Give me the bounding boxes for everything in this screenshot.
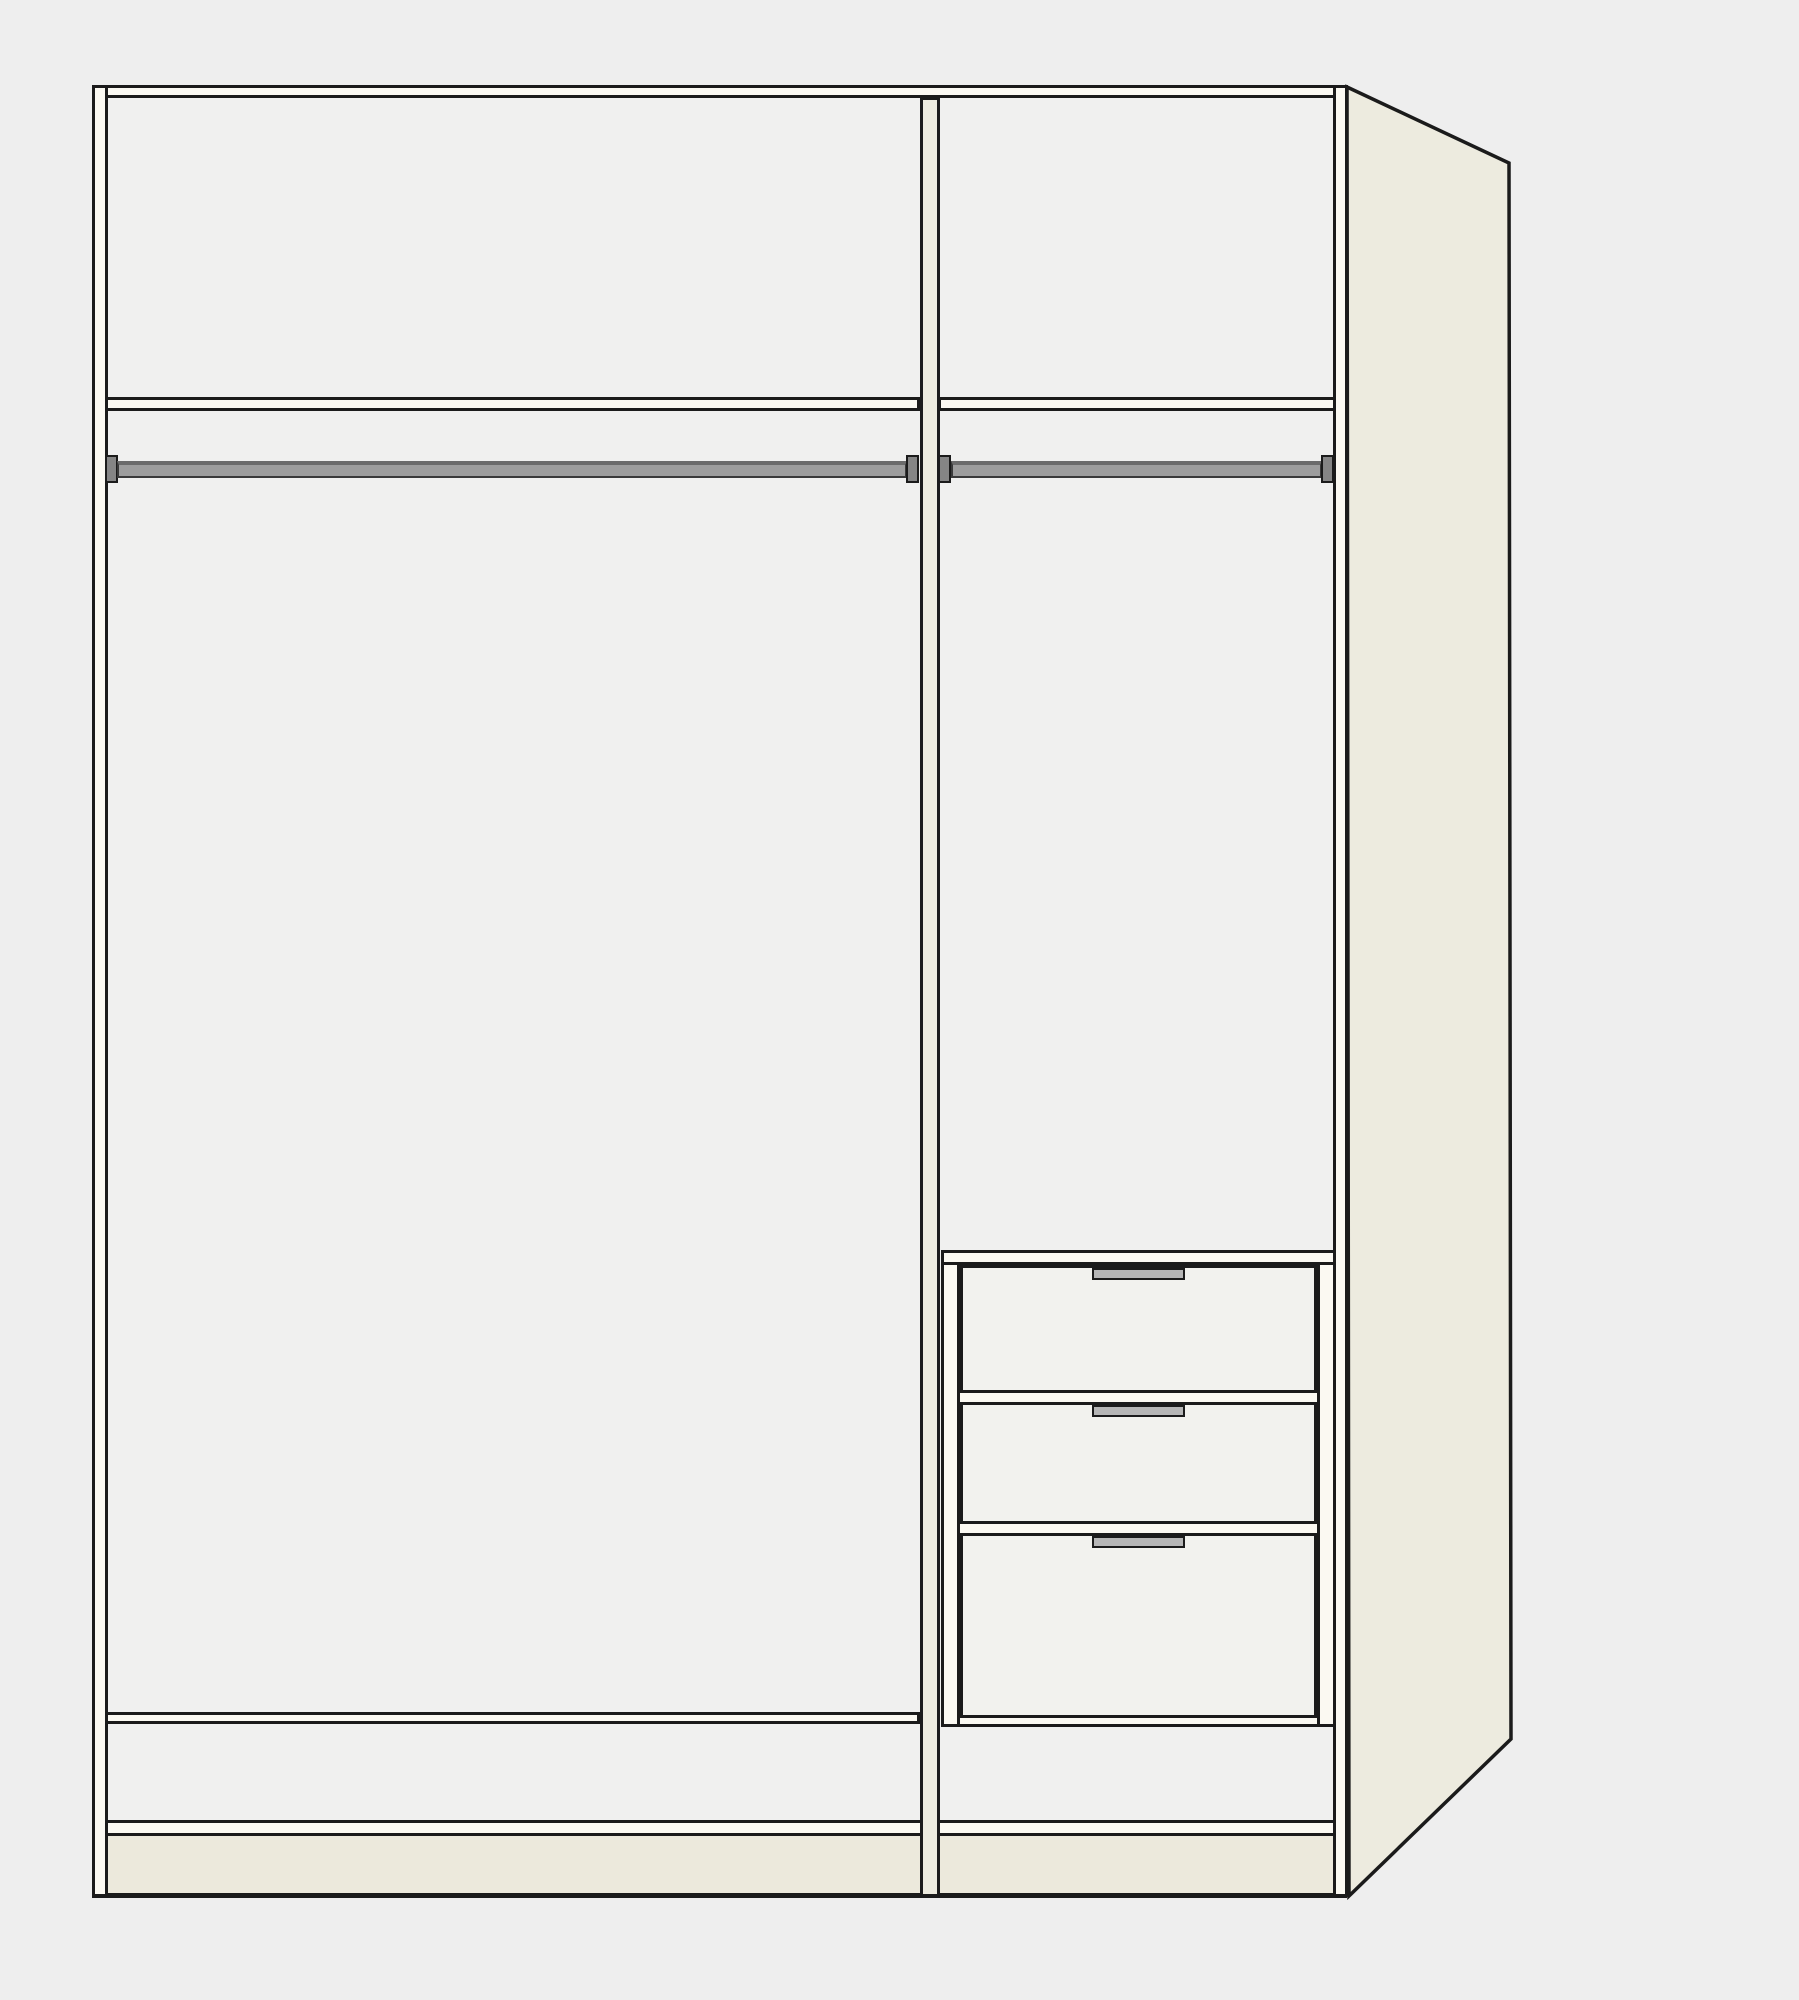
drawer-front[interactable]: [960, 1265, 1317, 1393]
side-panel-face: [1347, 87, 1511, 1896]
left-section-bottom-shelf[interactable]: [105, 1712, 920, 1724]
top-panel-edge: [92, 85, 1347, 98]
right-rail-bracket-left: [938, 455, 951, 483]
wardrobe-preview-canvas: [0, 0, 1799, 2000]
left-side-panel-edge: [92, 85, 108, 1897]
right-side-panel-perspective: [1345, 83, 1515, 1900]
right-section-top-shelf[interactable]: [938, 397, 1336, 411]
bottom-panel-edge: [92, 1820, 1347, 1836]
drawer-handle[interactable]: [1092, 1267, 1185, 1280]
right-rail-bracket-right: [1321, 455, 1334, 483]
left-rail-bracket-right: [906, 455, 919, 483]
drawer-handle[interactable]: [1092, 1404, 1185, 1417]
right-clothes-rail[interactable]: [951, 461, 1322, 478]
drawer-front[interactable]: [960, 1402, 1317, 1524]
drawer-unit[interactable]: [941, 1250, 1336, 1727]
left-clothes-rail[interactable]: [117, 461, 907, 478]
drawer-handle[interactable]: [1092, 1535, 1185, 1548]
center-partition: [920, 97, 940, 1897]
drawer-unit-right-frame-line: [1317, 1262, 1320, 1724]
left-section-top-shelf[interactable]: [105, 397, 920, 411]
drawer-front[interactable]: [960, 1533, 1317, 1718]
plinth: [92, 1836, 1347, 1898]
